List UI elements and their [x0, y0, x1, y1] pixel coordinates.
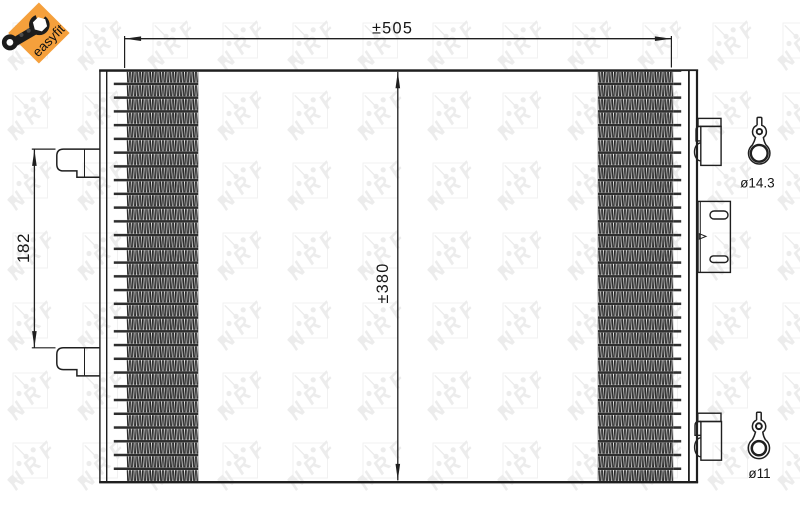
svg-text:±380: ±380 — [374, 263, 392, 304]
svg-text:ø11: ø11 — [748, 466, 770, 481]
svg-text:±505: ±505 — [372, 20, 413, 38]
svg-text:ø14.3: ø14.3 — [740, 176, 775, 191]
svg-text:182: 182 — [14, 233, 33, 263]
